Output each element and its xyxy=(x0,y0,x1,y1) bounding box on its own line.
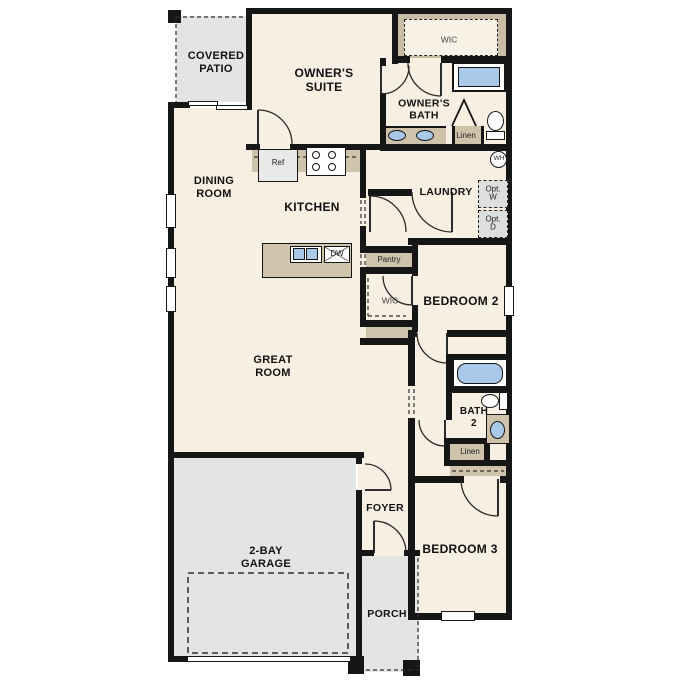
kitchen-sink-basin xyxy=(306,248,318,260)
stove-burner xyxy=(312,163,320,171)
label-opt-washer: Opt. W xyxy=(485,186,500,203)
label-dining-room: DINING ROOM xyxy=(194,175,234,201)
kitchen-hall-opening-dash xyxy=(361,200,365,224)
bathroom-sink xyxy=(388,130,406,141)
window xyxy=(166,194,176,228)
label-owners-bath: OWNER'S BATH xyxy=(398,98,450,123)
pantry-opening-dash xyxy=(361,254,365,266)
garage-door-outline xyxy=(188,573,348,653)
hall-opening-dash xyxy=(409,389,414,415)
kitchen-sink-basin xyxy=(293,248,305,260)
door-swing-owners-bath xyxy=(381,66,409,94)
label-water-heater: WH xyxy=(494,155,505,163)
window xyxy=(166,248,176,278)
patio-slider-panel xyxy=(216,105,248,110)
owners-bathtub-basin xyxy=(458,67,500,87)
label-bedroom3: BEDROOM 3 xyxy=(422,542,497,556)
toilet-tank xyxy=(499,392,508,410)
stove-burner xyxy=(328,151,336,159)
bath2-bathtub-basin xyxy=(457,363,503,384)
label-dishwasher: DW xyxy=(330,250,343,258)
window xyxy=(166,286,176,312)
door-swing-front-entry xyxy=(374,521,406,553)
label-covered-patio: COVERED PATIO xyxy=(188,50,245,76)
stove-burner xyxy=(328,163,336,171)
door-swing-owners-suite xyxy=(258,110,292,144)
bathroom-sink xyxy=(490,421,505,439)
label-laundry: LAUNDRY xyxy=(419,186,472,198)
label-kitchen: KITCHEN xyxy=(284,200,339,214)
door-swing-garage-entry xyxy=(365,464,391,490)
door-swing-bath2 xyxy=(419,420,445,446)
window xyxy=(441,611,475,621)
floor-plan: COVERED PATIO OWNER'S SUITE WIC OWNER'S … xyxy=(0,0,687,687)
door-swing-bedroom3 xyxy=(461,479,498,516)
label-bedroom2: BEDROOM 2 xyxy=(423,294,498,308)
label-foyer: FOYER xyxy=(366,502,404,514)
label-owners-suite: OWNER'S SUITE xyxy=(295,66,354,94)
toilet xyxy=(487,111,504,131)
bathroom-sink xyxy=(416,130,434,141)
door-swing-hall xyxy=(370,196,406,232)
label-owners-wic: WIC xyxy=(441,36,458,45)
window xyxy=(504,286,514,316)
label-bath2: BATH 2 xyxy=(460,406,488,430)
label-refrigerator: Ref xyxy=(272,159,284,167)
label-opt-dryer: Opt. D xyxy=(485,216,500,233)
label-bath2-linen: Linen xyxy=(460,448,480,456)
door-swing-bedroom2 xyxy=(417,333,447,363)
stove-burner xyxy=(312,151,320,159)
door-owners-linen xyxy=(452,100,476,126)
label-owners-linen: Linen xyxy=(456,132,476,140)
label-great-room: GREAT ROOM xyxy=(253,354,292,380)
doors-and-dashes-layer xyxy=(0,0,687,687)
label-bedroom2-wic: WIC xyxy=(382,297,399,306)
door-swing-owners-wic xyxy=(408,63,441,96)
patio-slider-panel xyxy=(188,101,218,106)
label-garage: 2-BAY GARAGE xyxy=(241,545,291,571)
label-pantry: Pantry xyxy=(377,256,400,264)
label-porch: PORCH xyxy=(367,608,406,620)
garage-door-opening xyxy=(188,657,350,661)
stove xyxy=(306,147,346,176)
toilet-tank xyxy=(486,131,505,140)
